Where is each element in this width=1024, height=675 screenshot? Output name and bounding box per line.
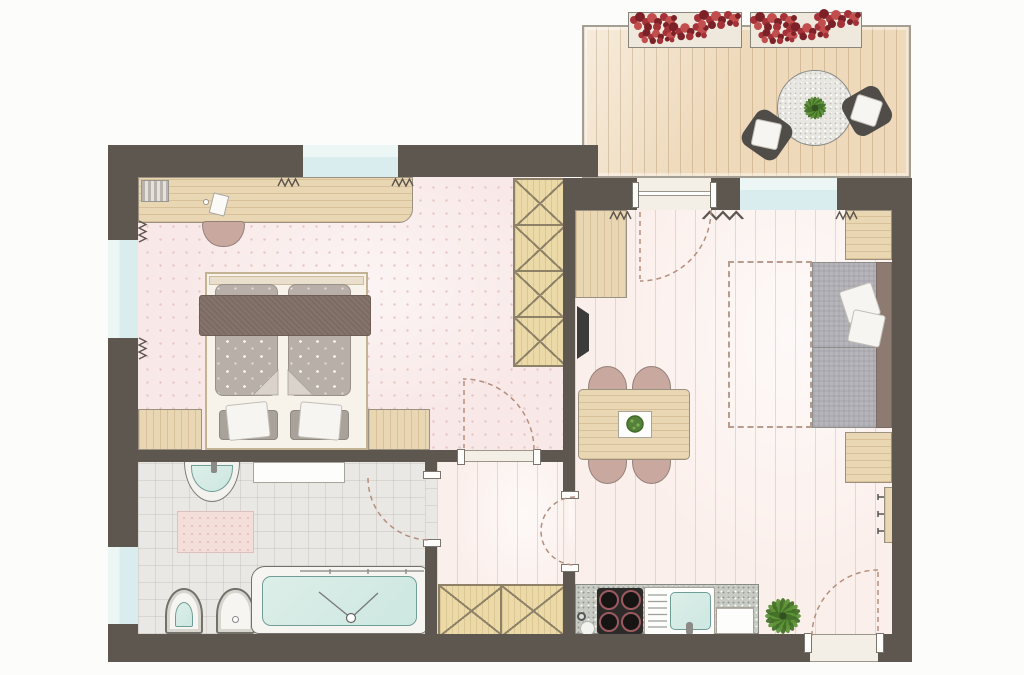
wardrobe-section-2 — [513, 224, 567, 275]
door-jamb — [876, 633, 884, 653]
balcony-chair-left-cushion — [750, 118, 782, 150]
living-room-window — [740, 178, 837, 210]
wall — [425, 540, 437, 634]
wall — [108, 450, 463, 462]
wall — [108, 338, 138, 547]
wardrobe-section-3 — [513, 270, 567, 321]
wall — [892, 178, 912, 662]
cooktop — [597, 588, 643, 634]
rug-outline — [728, 261, 812, 428]
side-cabinet-bottom — [845, 432, 892, 483]
bathtub-water — [262, 576, 417, 626]
door-jamb — [561, 491, 579, 499]
floor-plan — [0, 0, 1024, 675]
bath-mat — [177, 511, 254, 553]
desk-radiator-grille — [141, 180, 169, 202]
door-jamb — [804, 633, 812, 653]
wardrobe-section-1 — [513, 178, 567, 229]
bidet — [216, 588, 255, 634]
wall — [563, 178, 575, 450]
sofa-seat-bottom — [812, 347, 878, 428]
bed-cushion-right — [298, 401, 343, 441]
door-jamb — [423, 471, 441, 479]
bidet-drain — [232, 616, 239, 623]
wall — [108, 634, 810, 662]
wall — [108, 145, 138, 240]
door-jamb — [632, 182, 639, 208]
hallway-door-gap-floor — [563, 497, 575, 565]
door-jamb — [533, 449, 541, 465]
closet-section-1 — [438, 584, 505, 638]
desk — [138, 177, 413, 223]
bathroom-left-window — [108, 547, 138, 624]
balcony-sliding-door — [637, 178, 711, 210]
door-jamb — [561, 564, 579, 572]
entrance-door-threshold — [810, 634, 878, 662]
door-jamb — [457, 449, 465, 465]
serving-tray — [618, 411, 652, 438]
worktop-board — [716, 607, 754, 634]
sliding-door-rail — [637, 191, 711, 196]
bed-cushion-left — [225, 401, 271, 441]
side-cabinet-top — [845, 210, 892, 260]
wardrobe-section-4 — [513, 316, 567, 367]
bed-blanket — [199, 295, 371, 336]
bathroom-door-gap-floor — [425, 477, 437, 540]
wall — [563, 565, 575, 634]
wall-shelf — [253, 462, 345, 483]
bedroom-left-window — [108, 240, 138, 338]
toilet-bowl — [175, 602, 193, 627]
sideboard — [575, 210, 627, 298]
wall — [535, 450, 575, 462]
flower-box-left — [628, 12, 742, 48]
closet-section-2 — [500, 584, 567, 638]
sofa-pillow-2 — [847, 309, 886, 348]
door-jamb — [423, 539, 441, 547]
bench-left — [138, 409, 202, 450]
wall — [398, 145, 598, 177]
desk-cup — [203, 199, 209, 205]
bedroom-door-threshold — [463, 450, 535, 462]
counter-knob — [577, 612, 586, 621]
bench-right — [368, 409, 430, 450]
bedroom-top-window — [303, 145, 398, 177]
door-jamb — [710, 182, 717, 208]
flower-box-right — [750, 12, 862, 48]
